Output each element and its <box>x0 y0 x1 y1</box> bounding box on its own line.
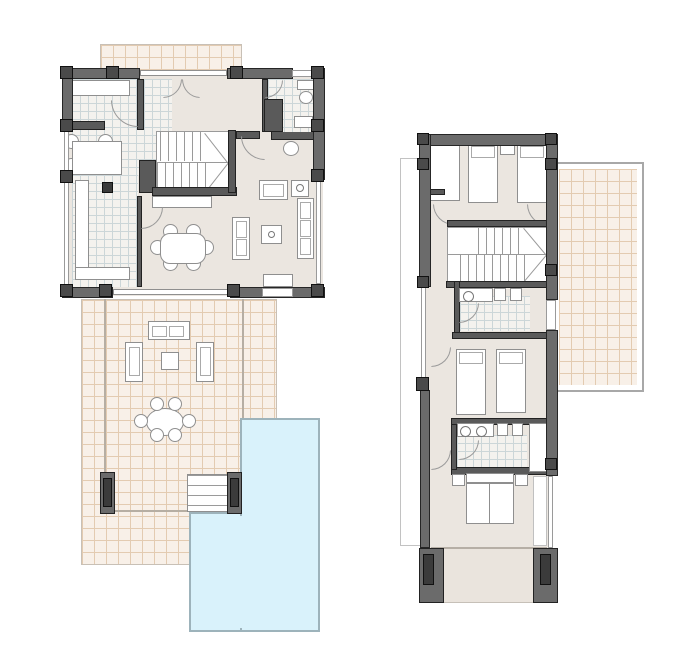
column-post <box>545 158 557 170</box>
wall2-right-mid <box>546 330 558 476</box>
balcony-edge-line <box>431 547 547 549</box>
bed-2-pillow <box>520 146 544 158</box>
column-post <box>545 133 557 145</box>
wall2-top <box>419 134 558 146</box>
bath1-sink <box>463 291 474 302</box>
wall-stairs-bath1 <box>446 281 557 288</box>
bed-3-pillow <box>459 352 483 364</box>
bath1-fixture-1 <box>494 288 506 301</box>
right2-glazing <box>548 476 553 548</box>
closet-3 <box>533 476 547 546</box>
stair2-mid-line <box>448 254 547 255</box>
column-post <box>417 133 429 145</box>
bed-5-right <box>489 483 514 524</box>
bed-1-pillow <box>471 146 495 158</box>
bed-4-pillow <box>499 352 523 364</box>
nightstand-2 <box>452 474 465 486</box>
column-post <box>416 377 429 391</box>
bed-5-headboard <box>466 473 514 483</box>
wall2-left-lower <box>420 390 430 548</box>
floorplan-canvas <box>0 0 697 652</box>
bath2-sink-1 <box>460 426 471 437</box>
stair2-lower-flight <box>460 255 526 281</box>
bath2-fixture-2 <box>512 423 523 436</box>
bath2-sink-2 <box>476 426 487 437</box>
balcony-pillar-right-core <box>540 554 551 585</box>
bed-5-left <box>466 483 490 524</box>
bath2-fixture-1 <box>497 423 508 436</box>
wall-bed1-stairs <box>447 220 557 227</box>
roof-terrace-tiles <box>559 169 637 385</box>
balcony-pillar-left-core <box>423 554 434 585</box>
column-post <box>417 158 429 170</box>
column-post <box>545 458 557 470</box>
nightstand-3 <box>515 474 528 486</box>
left2-glazing <box>421 287 426 382</box>
right2-window <box>546 300 556 330</box>
column-post <box>417 276 429 288</box>
bath1-fixture-2 <box>510 288 522 301</box>
first-floor-plan <box>0 0 697 652</box>
stair2-upper-flight <box>478 228 526 254</box>
wall2-left-upper <box>419 134 431 287</box>
wall-bath1-bed2 <box>452 332 550 339</box>
column-post <box>545 264 557 276</box>
